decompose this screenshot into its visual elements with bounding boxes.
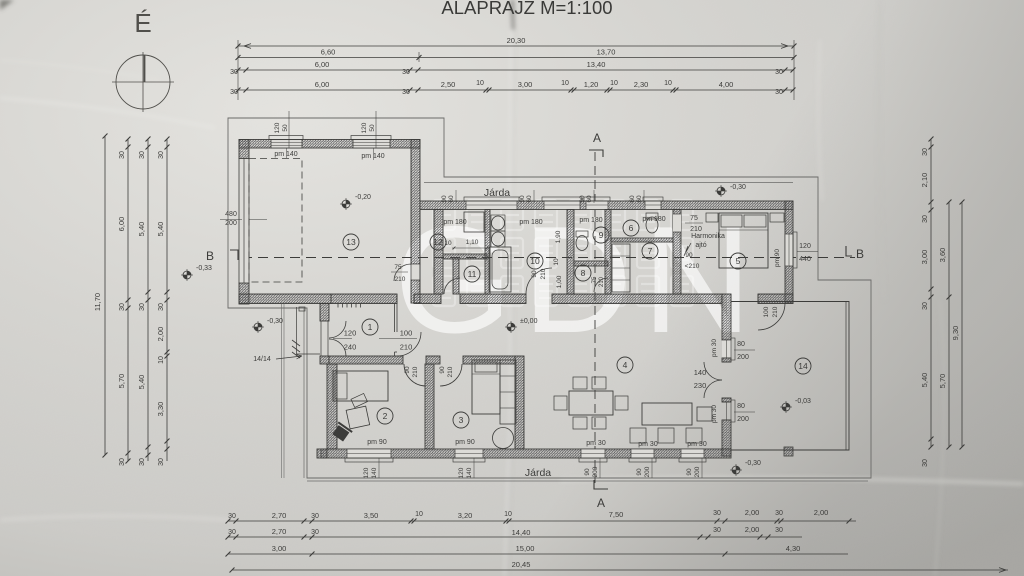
- svg-text:10: 10: [610, 80, 618, 87]
- svg-text:3,00: 3,00: [920, 250, 929, 265]
- svg-text:30: 30: [713, 527, 721, 534]
- svg-text:200: 200: [737, 416, 749, 423]
- svg-text:75: 75: [690, 215, 698, 222]
- svg-text:3,50: 3,50: [364, 511, 379, 520]
- svg-text:10: 10: [415, 511, 423, 518]
- svg-text:Járda: Járda: [525, 467, 551, 479]
- svg-text:3,20: 3,20: [458, 511, 473, 520]
- svg-text:pm 30: pm 30: [687, 441, 707, 448]
- svg-text:2,00: 2,00: [814, 508, 829, 517]
- svg-text:90: 90: [404, 366, 411, 374]
- svg-text:13: 13: [346, 237, 356, 247]
- svg-text:50: 50: [282, 124, 289, 132]
- svg-text:50: 50: [369, 124, 376, 132]
- svg-text:90: 90: [519, 195, 526, 203]
- svg-text:É: É: [134, 8, 151, 38]
- svg-text:-0,30: -0,30: [745, 460, 761, 467]
- svg-text:30: 30: [228, 513, 236, 520]
- svg-text:30: 30: [922, 302, 929, 310]
- svg-text:90: 90: [439, 366, 446, 374]
- svg-text:30: 30: [922, 459, 929, 467]
- svg-text:4,30: 4,30: [786, 544, 801, 553]
- svg-text:10: 10: [444, 240, 452, 247]
- svg-text:90: 90: [441, 195, 448, 203]
- svg-text:pm 140: pm 140: [274, 151, 297, 158]
- svg-text:90: 90: [636, 468, 643, 476]
- svg-text:210: 210: [395, 276, 406, 283]
- svg-text:10: 10: [530, 256, 540, 266]
- svg-text:3,30: 3,30: [156, 402, 165, 417]
- svg-text:210: 210: [690, 226, 702, 233]
- svg-text:14: 14: [798, 361, 808, 371]
- svg-text:pm 90: pm 90: [455, 439, 475, 446]
- svg-text:7: 7: [648, 246, 653, 256]
- svg-text:200: 200: [737, 354, 749, 361]
- svg-text:200: 200: [644, 466, 651, 477]
- svg-text:480: 480: [225, 211, 237, 218]
- svg-text:pm 180: pm 180: [579, 217, 602, 224]
- svg-text:3,00: 3,00: [272, 544, 287, 553]
- svg-text:ALAPRAJZ M=1:100: ALAPRAJZ M=1:100: [441, 0, 612, 18]
- svg-text:pm 180: pm 180: [642, 216, 665, 223]
- svg-text:pm 30: pm 30: [638, 441, 658, 448]
- svg-text:120: 120: [363, 467, 370, 478]
- svg-text:2,00: 2,00: [745, 525, 760, 534]
- svg-text:80: 80: [737, 341, 745, 348]
- svg-text:30: 30: [139, 151, 146, 159]
- svg-text:pm 30: pm 30: [711, 405, 718, 423]
- svg-text:30: 30: [311, 529, 319, 536]
- svg-text:200: 200: [592, 466, 599, 477]
- svg-text:30: 30: [119, 458, 126, 466]
- svg-text:30: 30: [311, 513, 319, 520]
- svg-text:5,70: 5,70: [117, 374, 126, 389]
- svg-text:pm 30: pm 30: [586, 440, 606, 447]
- svg-text:230: 230: [694, 381, 707, 390]
- svg-text:90: 90: [531, 270, 538, 278]
- svg-text:2: 2: [383, 411, 388, 421]
- svg-text:1,10: 1,10: [466, 239, 479, 246]
- svg-text:10: 10: [561, 80, 569, 87]
- svg-text:2,70: 2,70: [272, 511, 287, 520]
- svg-text:30: 30: [228, 529, 236, 536]
- svg-text:Harmonika: Harmonika: [691, 233, 725, 240]
- svg-text:-0,03: -0,03: [795, 398, 811, 405]
- svg-text:4,00: 4,00: [719, 80, 734, 89]
- svg-text:30: 30: [230, 69, 238, 76]
- svg-text:140: 140: [371, 467, 378, 478]
- svg-text:10: 10: [158, 356, 165, 364]
- svg-text:ajtó: ajtó: [695, 242, 706, 249]
- svg-text:30: 30: [775, 510, 783, 517]
- svg-text:-0,33: -0,33: [196, 265, 212, 272]
- svg-text:<210: <210: [685, 263, 700, 270]
- svg-text:140: 140: [466, 467, 473, 478]
- svg-text:90: 90: [685, 252, 693, 259]
- svg-text:30: 30: [119, 303, 126, 311]
- svg-text:30: 30: [158, 458, 165, 466]
- svg-text:30: 30: [402, 89, 410, 96]
- svg-text:30: 30: [158, 303, 165, 311]
- svg-text:200: 200: [225, 220, 237, 227]
- svg-text:5,40: 5,40: [137, 222, 146, 237]
- svg-text:5,40: 5,40: [920, 373, 929, 388]
- svg-text:2,30: 2,30: [634, 80, 649, 89]
- svg-text:30: 30: [139, 458, 146, 466]
- svg-text:140: 140: [694, 368, 707, 377]
- svg-text:30: 30: [119, 151, 126, 159]
- svg-text:60: 60: [629, 195, 636, 203]
- svg-text:30: 30: [775, 527, 783, 534]
- svg-text:9: 9: [599, 230, 604, 240]
- svg-text:2,10: 2,10: [920, 173, 929, 188]
- svg-text:60: 60: [586, 195, 593, 203]
- svg-text:3,00: 3,00: [518, 80, 533, 89]
- svg-text:Járda: Járda: [484, 187, 510, 199]
- svg-text:-0,20: -0,20: [355, 194, 371, 201]
- svg-text:5,40: 5,40: [137, 375, 146, 390]
- svg-text:pm 90: pm 90: [774, 249, 781, 267]
- svg-text:7,50: 7,50: [609, 510, 624, 519]
- svg-text:A: A: [597, 496, 605, 510]
- svg-text:30: 30: [775, 89, 783, 96]
- svg-text:75: 75: [394, 264, 402, 271]
- svg-text:B: B: [856, 247, 864, 261]
- svg-text:1,20: 1,20: [584, 80, 599, 89]
- svg-text:4: 4: [623, 360, 628, 370]
- svg-text:11,70: 11,70: [93, 293, 102, 311]
- svg-text:13,70: 13,70: [597, 48, 616, 57]
- svg-text:10: 10: [476, 80, 484, 87]
- svg-text:5,40: 5,40: [156, 222, 165, 237]
- svg-text:B: B: [206, 249, 214, 263]
- svg-text:60: 60: [448, 195, 455, 203]
- svg-text:pm 90: pm 90: [367, 439, 387, 446]
- svg-text:1,00: 1,00: [556, 275, 563, 288]
- svg-text:10: 10: [504, 511, 512, 518]
- svg-text:30: 30: [139, 303, 146, 311]
- svg-text:pm 30: pm 30: [711, 339, 718, 357]
- svg-text:14,40: 14,40: [512, 528, 531, 537]
- svg-text:6,00: 6,00: [315, 60, 330, 69]
- svg-text:210: 210: [412, 366, 419, 377]
- svg-text:210: 210: [772, 306, 779, 317]
- svg-text:9,30: 9,30: [951, 326, 960, 341]
- svg-text:200: 200: [694, 466, 701, 477]
- svg-text:14/14: 14/14: [253, 356, 271, 363]
- svg-text:pm 180: pm 180: [443, 219, 466, 226]
- svg-text:2,50: 2,50: [441, 80, 456, 89]
- svg-text:120: 120: [344, 329, 357, 338]
- svg-text:90: 90: [584, 468, 591, 476]
- svg-text:8: 8: [581, 268, 586, 278]
- svg-text:210: 210: [400, 343, 413, 352]
- svg-text:30: 30: [922, 148, 929, 156]
- svg-text:A: A: [593, 131, 601, 145]
- svg-text:30: 30: [775, 69, 783, 76]
- svg-text:30: 30: [230, 89, 238, 96]
- svg-text:30: 30: [713, 510, 721, 517]
- svg-text:30: 30: [402, 69, 410, 76]
- svg-text:6: 6: [629, 223, 634, 233]
- svg-text:±0,00: ±0,00: [520, 318, 538, 325]
- svg-text:120: 120: [274, 122, 281, 133]
- svg-text:120: 120: [361, 122, 368, 133]
- svg-text:2,00: 2,00: [745, 508, 760, 517]
- svg-text:6,00: 6,00: [117, 217, 126, 232]
- svg-text:6,00: 6,00: [315, 80, 330, 89]
- svg-text:120: 120: [458, 467, 465, 478]
- svg-text:13,40: 13,40: [587, 60, 606, 69]
- svg-text:10: 10: [664, 80, 672, 87]
- svg-text:90: 90: [579, 195, 586, 203]
- svg-text:30: 30: [922, 215, 929, 223]
- svg-text:3,60: 3,60: [938, 248, 947, 263]
- svg-text:60: 60: [526, 195, 533, 203]
- svg-text:11: 11: [468, 269, 477, 279]
- svg-text:12: 12: [433, 237, 443, 247]
- svg-text:2,00: 2,00: [156, 327, 165, 342]
- svg-text:100: 100: [763, 306, 770, 317]
- svg-text:1: 1: [368, 322, 373, 332]
- svg-text:60: 60: [636, 195, 643, 203]
- svg-text:15,00: 15,00: [516, 544, 535, 553]
- svg-text:20,45: 20,45: [512, 560, 531, 569]
- svg-text:10: 10: [553, 258, 560, 266]
- svg-text:pm 140: pm 140: [361, 153, 384, 160]
- svg-text:80: 80: [737, 403, 745, 410]
- svg-text:2,70: 2,70: [272, 527, 287, 536]
- svg-text:210: 210: [447, 366, 454, 377]
- svg-text:90: 90: [686, 468, 693, 476]
- svg-text:100: 100: [400, 329, 413, 338]
- svg-text:210: 210: [540, 268, 547, 279]
- svg-text:30: 30: [158, 151, 165, 159]
- svg-text:240: 240: [344, 343, 357, 352]
- svg-text:3: 3: [459, 415, 464, 425]
- svg-text:440: 440: [799, 256, 811, 263]
- svg-text:210: 210: [599, 276, 605, 287]
- svg-text:pm 180: pm 180: [519, 219, 542, 226]
- svg-text:1,90: 1,90: [555, 230, 562, 243]
- svg-text:20,30: 20,30: [507, 36, 526, 45]
- svg-text:75: 75: [592, 276, 598, 283]
- svg-text:120: 120: [799, 243, 811, 250]
- svg-text:-0,30: -0,30: [267, 318, 283, 325]
- svg-text:-0,30: -0,30: [730, 184, 746, 191]
- svg-text:6,60: 6,60: [321, 48, 336, 57]
- svg-text:5,70: 5,70: [938, 374, 947, 389]
- svg-text:5: 5: [736, 256, 741, 266]
